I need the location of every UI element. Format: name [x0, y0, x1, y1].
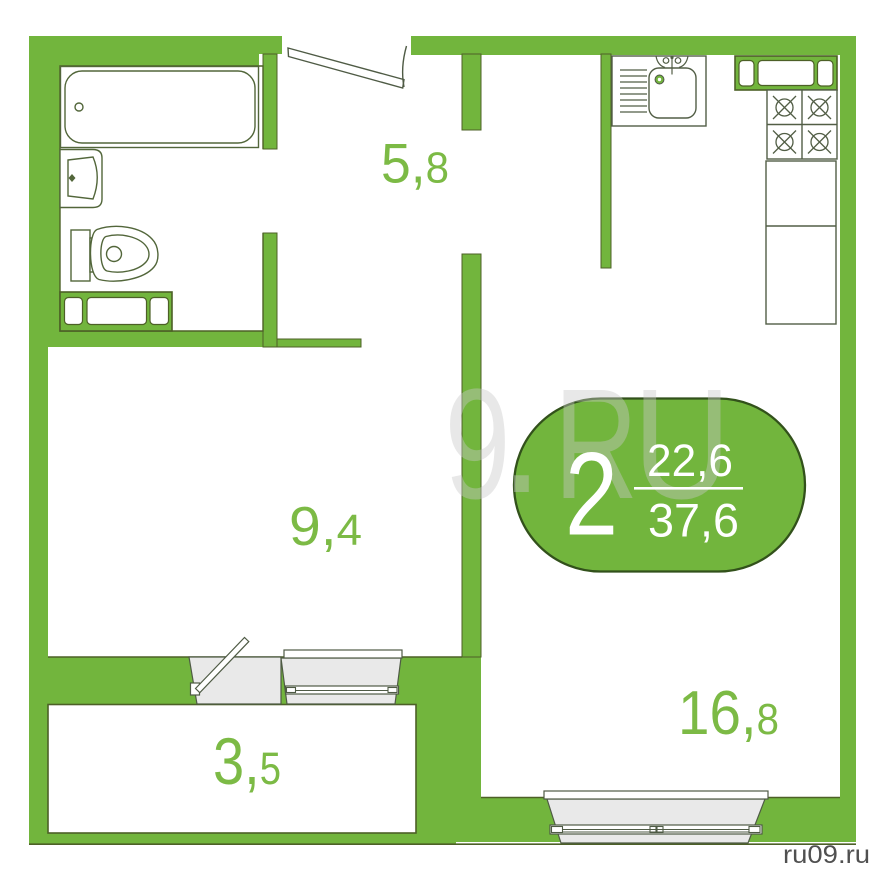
svg-text:22,6: 22,6: [647, 435, 733, 486]
svg-text:ru09.ru: ru09.ru: [783, 841, 870, 869]
svg-text:2: 2: [565, 428, 618, 560]
svg-text:37,6: 37,6: [648, 495, 739, 548]
svg-text:.: .: [500, 351, 544, 526]
